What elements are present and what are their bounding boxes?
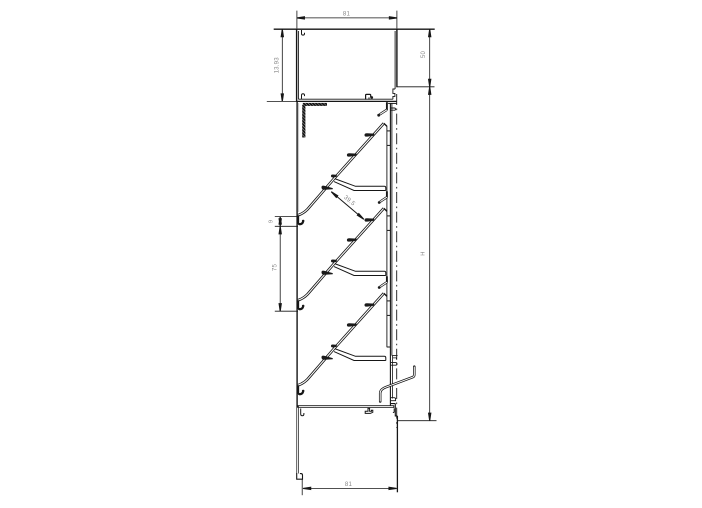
svg-text:H: H: [420, 251, 426, 255]
svg-text:39.5: 39.5: [342, 194, 357, 208]
svg-text:81: 81: [343, 11, 351, 18]
svg-text:75: 75: [271, 264, 278, 272]
svg-text:9: 9: [269, 220, 275, 223]
svg-text:81: 81: [345, 481, 353, 488]
svg-text:50: 50: [420, 51, 427, 59]
svg-text:13.93: 13.93: [274, 57, 281, 74]
